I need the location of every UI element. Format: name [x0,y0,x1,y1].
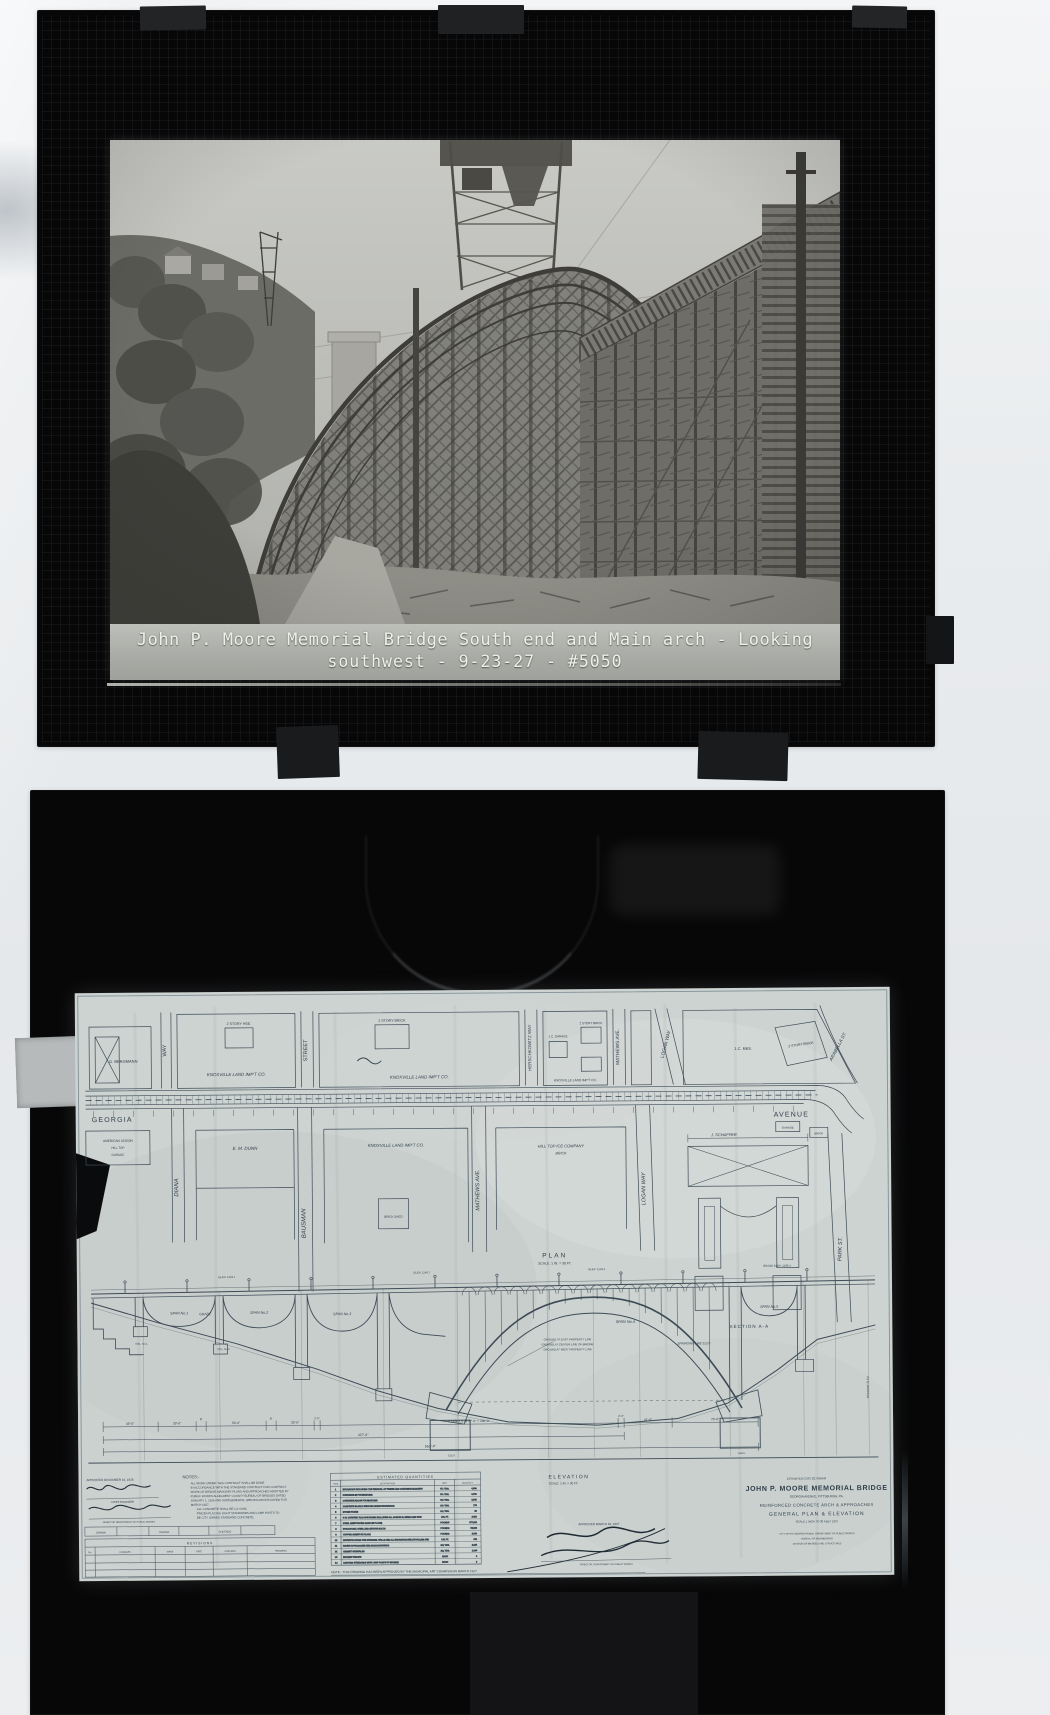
qty-desc: STRUCTURAL STEEL AND ANCHOR BOLTS [343,1527,386,1530]
approval-title: DIRECTOR, DEPARTMENT OF PUBLIC WORKS [580,1563,633,1566]
qty-desc: 6 IN. VITRIFIED TILE PIPE DRAINS INCLUDI… [343,1516,422,1520]
span-label: SPAN No.2 [250,1311,268,1315]
drawing-subtitle: GEORGIA AVENUE, PITTSBURGH, PA. [790,1494,844,1498]
reflection-arc [365,835,599,995]
block-label: KNOXVILLE LAND IMP'T CO. [554,1078,597,1082]
notes-heading: NOTES:- [182,1474,200,1479]
dept-line: BUREAU OF ENGINEERING [801,1537,833,1540]
qty-unit: CU. YDS. [440,1488,449,1490]
block-label: 1 C. RES. [734,1046,752,1051]
qty-unit: LIN. FT. [441,1517,449,1519]
glass-slide-drawing: G. BERGMANN 2 STORY HSE. KNOXVILLE LAND … [30,790,945,1715]
block-label: 2 STORY BRICK [580,1021,603,1025]
qty-value: 1,940 [472,1550,478,1552]
block-label: BRICK [555,1151,567,1155]
qty-unit: SQ. YDS. [441,1545,450,1547]
dim-subtotal: 427'-6" [358,1433,369,1437]
drawing-title: JOHN P. MOORE MEMORIAL BRIDGE [746,1485,888,1493]
tape-bottom-right [697,731,788,781]
tape-bottom-left [276,725,340,779]
revisions-header: DATE [196,1550,202,1553]
qty-unit: CU. YDS. [440,1494,449,1496]
qty-desc: LIGHTING STANDARDS WITH LAMP POSTS OF BR… [343,1561,399,1564]
drawing-subtitle: GENERAL PLAN & ELEVATION [769,1511,865,1518]
quantities-header: UNIT [442,1483,448,1485]
dim-label: 46'-6" [126,1422,134,1426]
notes-lines: ALL WORK UNDER THIS CONTRACT SHALL BE DO… [191,1481,289,1520]
footing-elev: ELEV. [738,1451,745,1455]
qty-desc: CONCRETE IN FOUNDATIONS [343,1494,373,1497]
grade-label: GRADE [199,1312,212,1316]
qty-item: 5 [335,1512,337,1514]
estimated-cost: ESTIMATED COST $2,708,849 [787,1476,827,1480]
qty-value: 2,100 [472,1533,478,1535]
revisions-header: CHANGES [119,1551,131,1554]
bottom-note: NOTE:- THIS DRAWING HAS BEEN APPROVED BY… [331,1569,478,1574]
approval-title: DIRECTOR DEPARTMENT OF PUBLIC WORKS [103,1521,156,1524]
span-label: SPAN No.4 [616,1320,635,1324]
dim-label: 41'-6" [644,1418,652,1422]
dim-label: 2'-6" [314,1416,320,1420]
dim-label: 33'-6" [291,1420,299,1424]
qty-unit: CU. YDS. [440,1511,449,1513]
bridge-construction-photo: John P. Moore Memorial Bridge South end … [110,140,840,680]
block-label: GARAGE [782,1126,794,1130]
block-label: E. M. DUNN [233,1146,259,1151]
block-label: HILL TOP ICE COMPANY [538,1143,585,1148]
dept-line: DIVISION OF BRIDGES AND STRUCTURES [793,1542,842,1545]
photo-illustration [110,140,840,624]
elevation-title: ELEVATION [548,1474,589,1480]
block-label: BRICK SHED [384,1215,403,1219]
dim-label: 76'-6" [711,1417,719,1421]
qty-value: 96 [474,1511,477,1513]
dim-label: 4 PANELS @ 57'-6" = 230'-0" [448,1419,490,1423]
qty-item: 1 [335,1489,337,1491]
springing-label: SPRINGING LINE ELEV. [677,1341,711,1345]
elev-mark: ELEV. 1149.7 [219,1275,236,1279]
edge-elev-label: ROADWAY ELEV. [866,1375,870,1398]
qty-desc: STONE FACING [343,1511,359,1514]
street-label: PARK ST. [837,1237,844,1261]
qty-desc: COPPER SHEETS IN PLACE [343,1533,371,1536]
block-label: J. SCHAFFER [710,1132,737,1137]
quantities-header: QUANTITY [462,1482,474,1485]
dim-total: 562'-4" [425,1444,437,1448]
tape-top-left [140,5,206,30]
qty-desc: STEEL REINFORCING BARS (IN PLACE) [343,1522,383,1525]
qty-item: 6 [335,1517,337,1519]
qty-value: 5,130 [472,1545,478,1547]
qty-value: 2 [476,1556,478,1558]
qty-value: 2,000 [472,1516,478,1518]
approval-date: APPROVED MARCH 16, 1927 [578,1522,619,1526]
section-label: SECTION A-A [730,1324,770,1329]
qty-unit: EACH [442,1555,448,1558]
street-label: DIANA [174,1178,180,1196]
photo-caption: John P. Moore Memorial Bridge South end … [110,624,840,680]
reflection-sheen [610,845,780,915]
notes-line: BE CITY OWNED STANDARD CONCRETE. [197,1515,255,1519]
qty-unit: LIN. FT. [441,1539,449,1541]
elev-mark: GRADE ELEV. 1139.4 [763,1264,791,1268]
revisions-header: CHECKED [224,1551,236,1553]
tape-right-edge [926,616,954,664]
qty-unit: POUNDS [441,1533,451,1535]
block-label: 2 STORY BRICK [378,1019,406,1023]
qty-value: 8 [476,1561,478,1563]
quantities-header: ITEM [333,1484,338,1486]
caption-line-1: John P. Moore Memorial Bridge South end … [110,630,840,650]
drawing-subtitle: REINFORCED CONCRETE ARCH & APPROACHES [760,1502,874,1508]
qty-item: 7 [335,1523,337,1525]
block-label: HILL TOP [111,1146,124,1150]
revisions-title: REVISIONS [187,1541,213,1545]
span-label: SPAN No.5 [760,1305,778,1309]
span-label: SPAN No.3 [333,1312,351,1316]
street-label: HERSCHKOWITZ WAY [527,1024,532,1070]
street-label: STREET [303,1039,309,1061]
street-label: LOGAN WAY [641,1172,647,1205]
qty-item: 4 [335,1506,337,1508]
drawn-label: DRAWN [96,1530,106,1534]
glass-edge-glow [902,1450,908,1590]
block-label: KNOXVILLE LAND IMP'T CO. [390,1074,449,1079]
checked-label: CHECKED [219,1529,232,1533]
quantities-title: ESTIMATED QUANTITIES [377,1475,433,1479]
qty-unit: POUNDS [440,1522,450,1524]
qty-item: 11 [335,1546,338,1548]
qty-item: 9 [335,1534,337,1536]
qty-value: 3,048 [471,1499,477,1501]
qty-desc: EXCAVATION INCLUDING THE REMOVAL OF TIMB… [343,1488,424,1492]
street-label: BAUSMAN [301,1208,307,1238]
qty-item: 3 [335,1500,337,1502]
avenue-name-left: GEORGIA [92,1117,133,1124]
revisions-header: REMARKS [275,1550,287,1553]
elevation-scale: SCALE: 1 IN. = 30 FT. [549,1481,579,1485]
street-label: MATHEWS AVE. [615,1029,621,1065]
qty-unit: CU. YDS. [440,1500,449,1502]
dim-label: 2'-6" [618,1414,624,1418]
street-label: MATHEWS AVE. [475,1169,481,1210]
qty-item: 2 [335,1495,337,1497]
qty-desc: PAVING APPROACHES AND ARCH ROADWAYS [343,1544,390,1547]
revisions-header: MADE [167,1550,174,1553]
qty-item: 13 [335,1557,338,1559]
glass-slide-photo: John P. Moore Memorial Bridge South end … [37,10,935,747]
lightbox-scene: John P. Moore Memorial Bridge South end … [0,0,1050,1715]
qty-unit: CU. YDS. [440,1505,449,1507]
vignette [110,140,840,624]
qty-value: 961 [474,1539,478,1541]
caption-line-2: southwest - 9-23-27 - #5050 [110,652,840,671]
traced-label: TRACED [159,1530,170,1534]
qty-value: 4,500 [471,1488,477,1490]
avenue-name-right: AVENUE [774,1111,810,1118]
glass-edge-highlight [107,683,841,686]
block-label: G. BERGMANN [109,1059,138,1064]
block-label: KNOXVILLE LAND IMP'T CO. [368,1142,424,1147]
plan-scale: SCALE: 1 IN. = 30 FT. [538,1261,572,1265]
dept-line: CITY OF PITTSBURGH PENNA. DEPARTMENT OF … [780,1532,855,1536]
qty-desc: CEMENT SIDEWALKS [343,1550,365,1553]
block-label: BRICK [815,1131,824,1135]
qty-value: 1,710 [471,1494,477,1496]
block-label: 2 STORY HSE. [227,1022,252,1026]
elev-mark: ELEV. 1143.4 [588,1267,605,1271]
qty-value: 53,000 [471,1528,478,1530]
approval-title: CHIEF ENGINEER [111,1500,134,1504]
street-label: WAY [162,1044,168,1056]
frame-shadow-patch [470,1592,698,1715]
revisions-header: No. [88,1552,92,1554]
footing-elev: ELEV. [448,1453,455,1457]
block-label: GARAGE [112,1153,125,1157]
plan-title: PLAN [542,1252,567,1259]
tape-top-right [852,6,907,29]
approval-date: APPROVED DECEMBER 16, 1926 [87,1478,134,1482]
qty-unit: POUNDS [440,1528,450,1530]
qty-item: 10 [335,1540,338,1542]
ground-line-note: GROUND AT WEST PROPERTY LINE [543,1347,592,1351]
block-label: AMERICAN LEGION [103,1139,133,1143]
dim-label: 33'-6" [173,1421,181,1425]
ground-line-note: GROUND AT EAST PROPERTY LINE [544,1337,592,1341]
qty-desc: WATERPROOFING THE SPANDREL WALLS AND ALL… [343,1538,429,1542]
drawing-canvas: G. BERGMANN 2 STORY HSE. KNOXVILLE LAND … [75,987,895,1581]
qty-value: 775 [473,1505,477,1507]
qty-unit: EACH [442,1561,448,1564]
ground-line-note: GROUND AT CENTER LINE OF BRIDGE [542,1342,594,1346]
qty-item: 8 [335,1529,337,1531]
qty-value: 877,000 [469,1522,477,1524]
engineering-drawing: G. BERGMANN 2 STORY HSE. KNOXVILLE LAND … [75,987,895,1581]
column-label: COL. No.2 [217,1347,230,1351]
qty-unit: SQ. YDS. [441,1550,450,1552]
quantities-header: DESCRIPTION [380,1483,395,1485]
column-label: COL. No.1 [135,1342,148,1346]
qty-item: 12 [335,1551,338,1553]
qty-item: 14 [335,1563,338,1565]
qty-desc: CONCRETE ABOVE FOUNDATIONS [343,1499,378,1502]
dim-label: 53'-6" [232,1421,240,1425]
block-label: 1 C. GARAGE [548,1034,567,1038]
drawing-scale: SCALE 1 INCH TO 30 FEET 1927 [796,1519,839,1523]
qty-desc: BRONZE TABLETS [343,1556,362,1559]
elev-mark: ELEV. 1146.7 [413,1270,430,1274]
span-label: SPAN No.1 [170,1311,188,1315]
block-label: KNOXVILLE LAND IMP'T CO. [207,1072,266,1077]
qty-desc: CONCRETE IN ARCH RIBS INCLUDING EXCAVATI… [343,1505,395,1508]
tape-top-center [438,5,524,34]
